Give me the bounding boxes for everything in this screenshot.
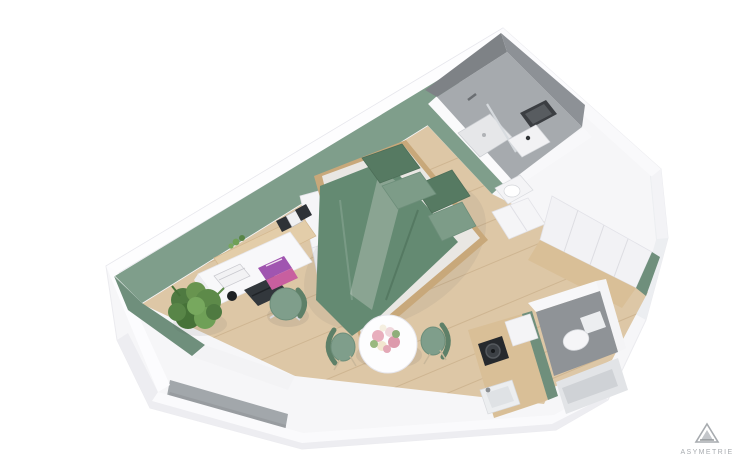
chair-left-seat (331, 333, 355, 361)
chair-right-seat (421, 327, 445, 355)
brand-logo: ASYMETRIE (680, 424, 733, 456)
desk-bowl (227, 291, 237, 301)
kitchen-faucet (486, 388, 491, 393)
chair-seat (270, 288, 302, 320)
floor-plan-canvas: ASYMETRIE (0, 0, 736, 471)
cooktop-burner-center (491, 349, 495, 353)
brand-name: ASYMETRIE (680, 449, 733, 456)
desk-chair (267, 288, 309, 327)
dining-table-top (359, 315, 417, 373)
bathroom-toilet-seat (504, 185, 520, 197)
shower-drain (482, 133, 486, 137)
basin-faucet (526, 136, 530, 140)
floor-plan-render: ASYMETRIE (0, 0, 736, 471)
